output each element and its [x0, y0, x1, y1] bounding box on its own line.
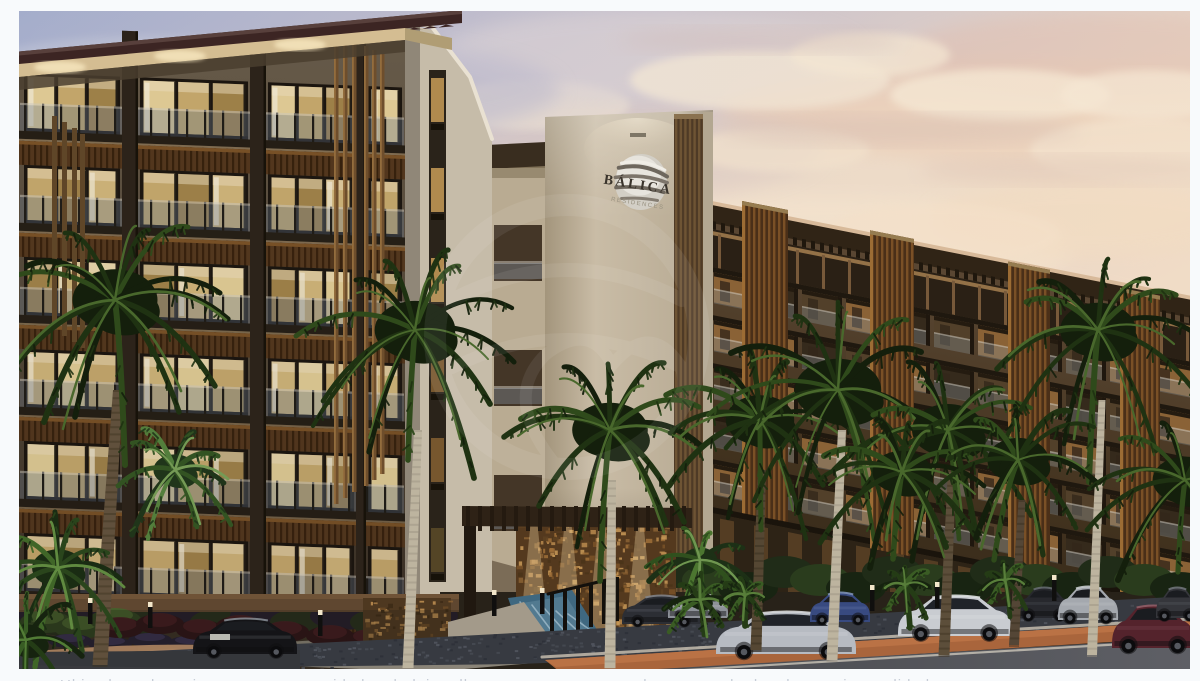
svg-text:Ubicado en la mejor zona con a: Ubicado en la mejor zona con amenidades … [60, 677, 930, 681]
